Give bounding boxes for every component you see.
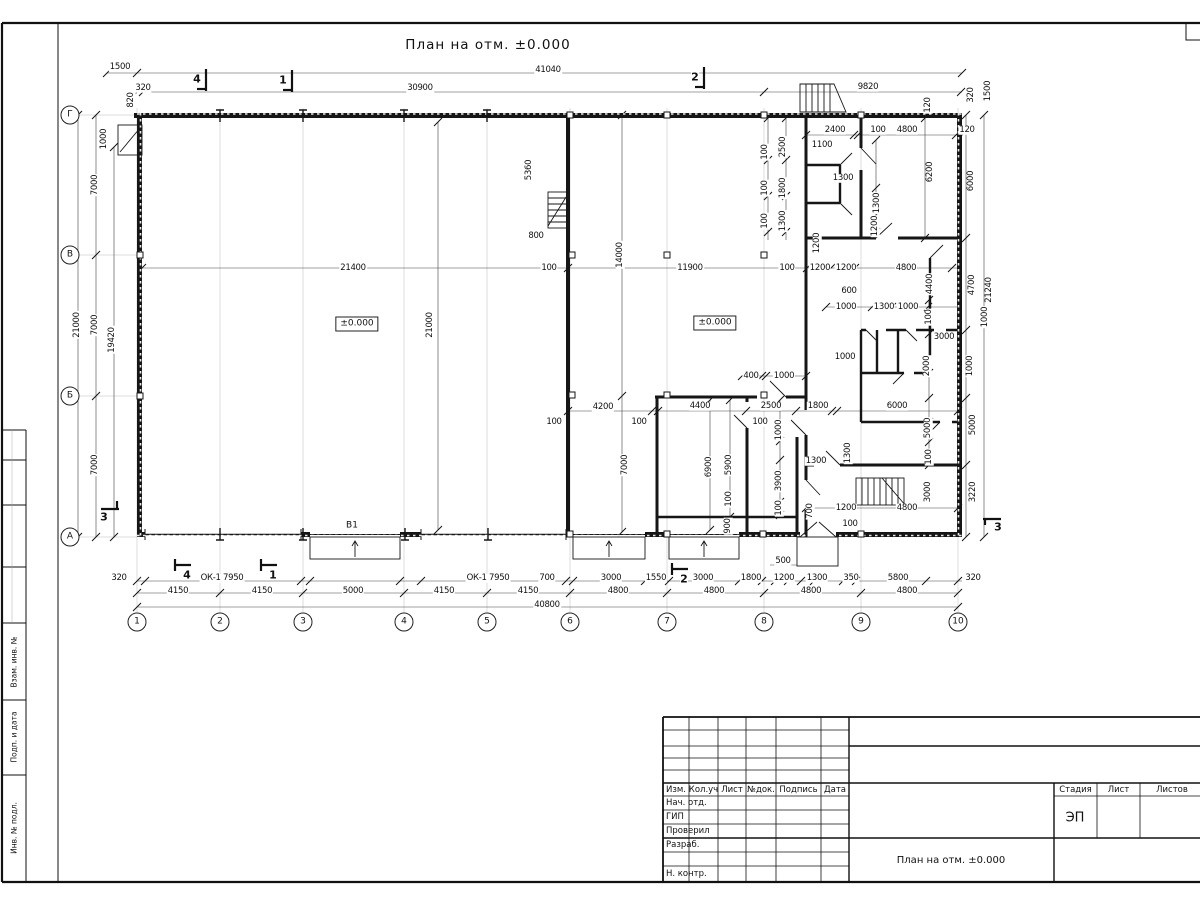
dim-label: 21240 [985, 276, 994, 304]
axis-bubble-bottom: 3 [294, 613, 313, 632]
frame-strip-label: Подп. и дата [10, 711, 18, 762]
dim-label: 1800 [807, 402, 829, 411]
level-mark-label: ±0.000 [693, 316, 736, 331]
dim-label: 1000 [773, 372, 795, 381]
dim-label: 4200 [592, 403, 614, 412]
stamp-header-cell: Дата [824, 786, 846, 795]
section-marker-label: 1 [279, 75, 287, 86]
axis-bubble-bottom: 1 [128, 613, 147, 632]
dim-label: 100 [761, 212, 770, 229]
dim-label: 1300 [873, 303, 895, 312]
dim-label: 1200 [871, 215, 880, 237]
section-marker-label: 2 [680, 574, 688, 585]
dim-label: 3000 [692, 574, 714, 583]
section-marker-label: 2 [691, 72, 699, 83]
dim-label: 1300 [779, 210, 788, 232]
dim-label: 3220 [969, 481, 978, 503]
dim-label: 100 [761, 143, 770, 160]
axis-bubble-bottom: 4 [395, 613, 414, 632]
dim-label: 100 [630, 418, 647, 427]
dim-label: 500 [774, 557, 791, 566]
dim-label: 5900 [725, 454, 734, 476]
section-marker-label: 3 [100, 512, 108, 523]
dim-label: 4700 [968, 274, 977, 296]
dim-label: 5000 [342, 587, 364, 596]
dim-label: 4800 [896, 587, 918, 596]
dim-label: 100 [725, 490, 734, 507]
dim-label: 350 [842, 574, 859, 583]
dim-label: 1200 [813, 232, 822, 254]
dim-label: 3000 [933, 333, 955, 342]
dim-label: 320 [110, 574, 127, 583]
dim-label: 1550 [645, 574, 667, 583]
dim-label: 4400 [689, 402, 711, 411]
dim-label: 3000 [600, 574, 622, 583]
dim-label: 320 [964, 574, 981, 583]
dimension-ticks [74, 69, 988, 611]
dim-label: 41040 [534, 66, 562, 75]
dim-label: 1500 [984, 80, 993, 102]
dim-label: 4800 [703, 587, 725, 596]
dim-label: 4150 [517, 587, 539, 596]
dim-label: 3000 [924, 481, 933, 503]
dim-label: 1300 [873, 192, 882, 214]
dim-label: 4150 [167, 587, 189, 596]
dim-label: 1000 [775, 419, 784, 441]
stamp-stage-header: Стадия [1059, 786, 1092, 795]
dim-label: 4150 [251, 587, 273, 596]
dim-label: 100 [925, 308, 934, 325]
dim-label: 100 [869, 126, 886, 135]
section-marker-label: 3 [994, 522, 1002, 533]
plan-linework [0, 0, 1200, 900]
dim-label: 7000 [91, 174, 100, 196]
dim-label: 5360 [525, 159, 534, 181]
sheet-frame [2, 23, 1200, 882]
level-mark-label: ±0.000 [335, 317, 378, 332]
dim-label: 100 [751, 418, 768, 427]
dim-label: 1200 [835, 264, 857, 273]
dim-label: 800 [527, 232, 544, 241]
stamp-stage-header: Листов [1156, 786, 1188, 795]
column-marks [137, 112, 864, 537]
dim-label: 30900 [406, 84, 434, 93]
section-marker-label: 4 [193, 74, 201, 85]
dim-label: 21000 [426, 311, 435, 339]
door-leaves [120, 128, 943, 537]
dim-label: 1000 [897, 303, 919, 312]
dim-label: 7000 [91, 314, 100, 336]
frame-strip-label: Инв. № подл. [10, 802, 18, 854]
dim-label: 4800 [607, 587, 629, 596]
dim-label: 6200 [926, 161, 935, 183]
dim-label: 1300 [844, 442, 853, 464]
drawing-sheet: План на отм. ±0.000 План на отм. ±0.000 … [0, 0, 1200, 900]
dim-label: 7000 [621, 454, 630, 476]
axis-bubble-left: А [61, 528, 80, 547]
dim-label: 6000 [967, 170, 976, 192]
dim-label: 700 [806, 502, 815, 519]
dim-label: 1800 [779, 177, 788, 199]
dim-label: 320 [134, 84, 151, 93]
dim-label: 100 [540, 264, 557, 273]
dim-label: 2400 [824, 126, 846, 135]
dim-label: 9820 [857, 83, 879, 92]
dim-label: 3900 [775, 470, 784, 492]
dim-label: 14000 [616, 241, 625, 269]
axis-bubble-left: Б [61, 387, 80, 406]
dim-label: 40800 [533, 601, 561, 610]
axis-bubble-left: Г [61, 106, 80, 125]
dim-label: 11900 [676, 264, 704, 273]
dim-label: 1100 [811, 141, 833, 150]
section-marker-flags [101, 67, 1001, 575]
dim-label: 120 [958, 126, 975, 135]
dim-label: 1300 [806, 574, 828, 583]
dim-label: 4800 [896, 126, 918, 135]
entry-label: В1 [346, 522, 358, 531]
dim-label: 1000 [835, 303, 857, 312]
dim-label: 2000 [923, 355, 932, 377]
axis-bubble-bottom: 10 [949, 613, 968, 632]
dim-label: 2500 [760, 402, 782, 411]
dim-label: 1800 [740, 574, 762, 583]
axis-bubble-bottom: 8 [755, 613, 774, 632]
dim-label: 4400 [926, 273, 935, 295]
stamp-header-cell: Изм. [666, 786, 686, 795]
dim-label: 4150 [433, 587, 455, 596]
dim-label: 1300 [832, 174, 854, 183]
dim-label: ОК-1 7950 [200, 574, 245, 583]
axis-bubble-bottom: 5 [478, 613, 497, 632]
dim-label: 5800 [887, 574, 909, 583]
stamp-header-cell: Лист [721, 786, 743, 795]
section-marker-label: 1 [269, 570, 277, 581]
dim-label: 1300 [805, 457, 827, 466]
dim-label: 1000 [100, 128, 109, 150]
dim-label: 320 [967, 86, 976, 103]
axis-bubble-bottom: 6 [561, 613, 580, 632]
dim-label: 4800 [896, 504, 918, 513]
frame-strip-label: Взам. инв. № [10, 637, 18, 688]
dim-label: 1000 [834, 353, 856, 362]
stamp-role-cell: Разраб. [666, 841, 699, 850]
stamp-role-cell: Нач. отд. [666, 799, 707, 808]
dim-label: 21400 [339, 264, 367, 273]
stamp-role-cell: ГИП [666, 813, 684, 822]
dim-label: 7000 [91, 454, 100, 476]
dim-label: 1200 [835, 504, 857, 513]
stamp-header-cell: №док. [747, 786, 775, 795]
dim-label: 5000 [969, 414, 978, 436]
dim-label: 100 [545, 418, 562, 427]
dim-label: 1000 [966, 355, 975, 377]
stamp-header-cell: Подпись [779, 786, 817, 795]
axis-bubble-bottom: 9 [852, 613, 871, 632]
dim-label: 100 [778, 264, 795, 273]
dim-label: 1200 [773, 574, 795, 583]
dim-label: 400 [742, 372, 759, 381]
dim-label: 6000 [886, 402, 908, 411]
dim-label: 6900 [705, 456, 714, 478]
dim-label: 4800 [800, 587, 822, 596]
stamp-role-cell: Н. контр. [666, 870, 707, 879]
dim-label: 1200 [809, 264, 831, 273]
dim-label: 600 [840, 287, 857, 296]
dim-label: 100 [775, 499, 784, 516]
stamp-stage-value: ЭП [1066, 812, 1085, 825]
dim-label: 5000 [924, 417, 933, 439]
dim-label: 4800 [895, 264, 917, 273]
dim-label: ОК-1 7950 [466, 574, 511, 583]
dim-label: 2500 [779, 136, 788, 158]
stamp-doc-title: План на отм. ±0.000 [897, 856, 1005, 866]
axis-bubble-bottom: 2 [211, 613, 230, 632]
axis-grid-lines [79, 108, 958, 612]
dim-label: 820 [127, 91, 136, 108]
stamp-stage-header: Лист [1108, 786, 1130, 795]
dim-label: 19420 [108, 326, 117, 354]
axis-bubble-bottom: 7 [658, 613, 677, 632]
dim-label: 1500 [109, 63, 131, 72]
dim-label: 120 [924, 96, 933, 113]
dim-label: 21000 [73, 311, 82, 339]
stairs-and-porches [118, 84, 906, 566]
stamp-role-cell: Проверил [666, 827, 710, 836]
dim-label: 700 [538, 574, 555, 583]
stamp-header-cell: Кол.уч [689, 786, 718, 795]
dim-label: 100 [925, 448, 934, 465]
section-marker-label: 4 [183, 570, 191, 581]
axis-bubble-left: В [61, 246, 80, 265]
dim-label: 1000 [981, 306, 990, 328]
drawing-title: План на отм. ±0.000 [405, 37, 570, 53]
dim-label: 900 [724, 517, 733, 534]
dim-label: 100 [841, 520, 858, 529]
dim-label: 100 [761, 179, 770, 196]
